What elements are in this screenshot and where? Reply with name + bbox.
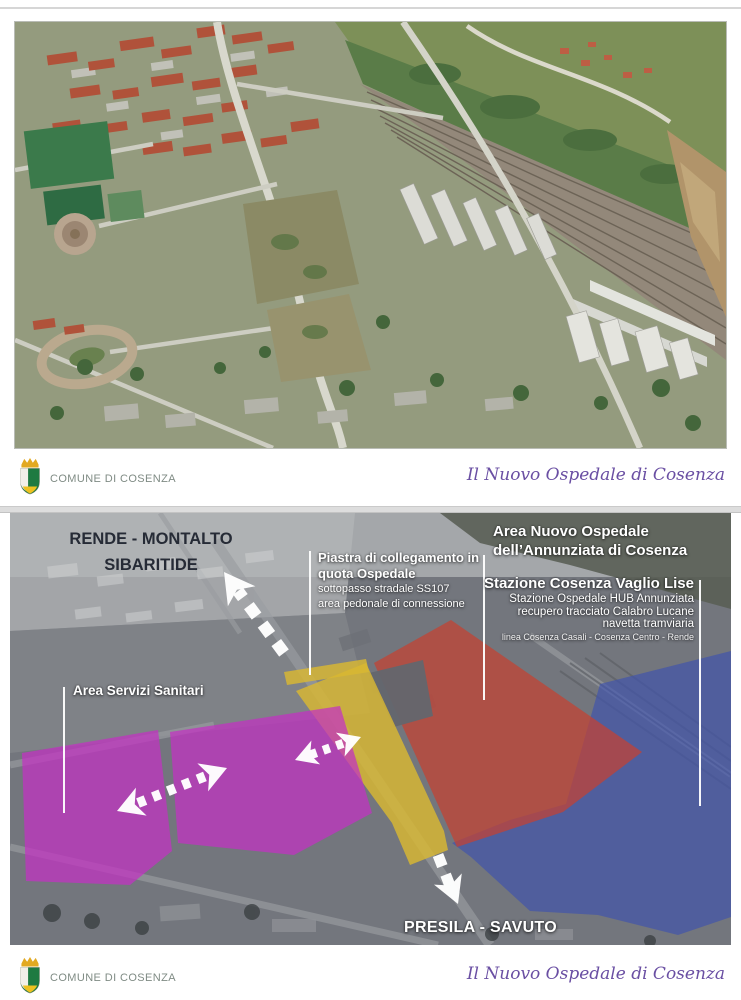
comune-di-cosenza-crest [17,956,43,996]
document-page: COMUNE DI COSENZA Il Nuovo Ospedale di C… [0,0,741,1000]
label-rende-montalto-sibaritide: RENDE - MONTALTO SIBARITIDE [48,526,254,578]
comune-label: COMUNE DI COSENZA [50,473,176,485]
label-stazione-vaglio-lise: Stazione Cosenza Vaglio Lise Stazione Os… [414,575,694,643]
presentation-title: Il Nuovo Ospedale di Cosenza [467,964,725,984]
comune-label: COMUNE DI COSENZA [50,972,176,984]
presentation-title: Il Nuovo Ospedale di Cosenza [467,465,725,485]
label-presila-savuto: PRESILA - SAVUTO [404,919,557,937]
label-area-nuovo-ospedale: Area Nuovo Ospedale dell’Annunziata di C… [493,522,703,560]
aerial-photo-current-state [15,22,726,448]
slide-1: COMUNE DI COSENZA Il Nuovo Ospedale di C… [0,9,741,506]
label-area-servizi-sanitari: Area Servizi Sanitari [73,683,204,698]
overlay-area-servizi-west [22,730,172,885]
slide-2: RENDE - MONTALTO SIBARITIDE Piastra di c… [0,513,741,1000]
aerial-photo-1-art [15,22,726,448]
aerial-photo-masterplan: RENDE - MONTALTO SIBARITIDE Piastra di c… [10,513,731,945]
comune-di-cosenza-crest [17,457,43,497]
slide-divider [0,506,741,513]
